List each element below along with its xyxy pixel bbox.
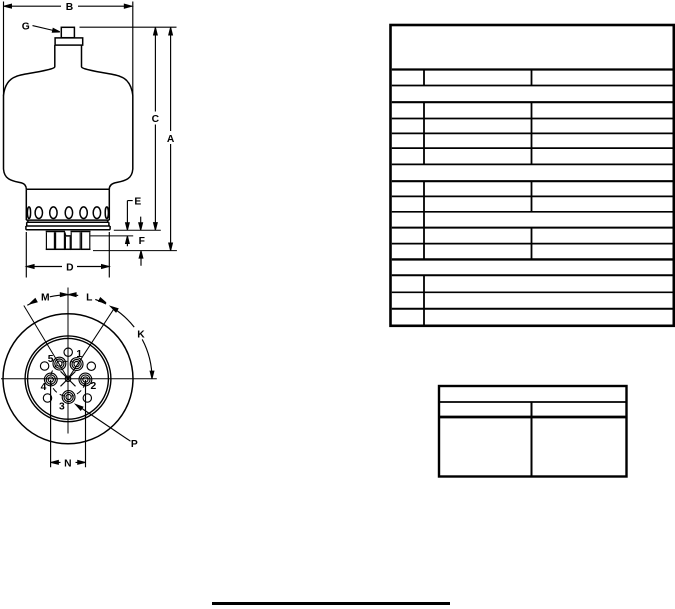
svg-text:G: G — [22, 22, 30, 33]
svg-text:2: 2 — [91, 381, 97, 392]
svg-text:4: 4 — [41, 382, 47, 393]
svg-text:D: D — [66, 262, 73, 273]
svg-text:N: N — [64, 458, 71, 469]
svg-text:B: B — [66, 2, 73, 13]
svg-text:E: E — [134, 197, 141, 208]
svg-text:C: C — [152, 114, 160, 125]
svg-text:3: 3 — [59, 402, 65, 413]
svg-text:1: 1 — [76, 349, 82, 360]
svg-text:M: M — [41, 292, 50, 303]
svg-text:F: F — [139, 236, 145, 247]
svg-text:K: K — [137, 329, 145, 340]
svg-text:A: A — [167, 134, 175, 145]
svg-text:P: P — [131, 439, 138, 450]
svg-text:L: L — [86, 292, 92, 303]
svg-text:5: 5 — [48, 354, 54, 365]
